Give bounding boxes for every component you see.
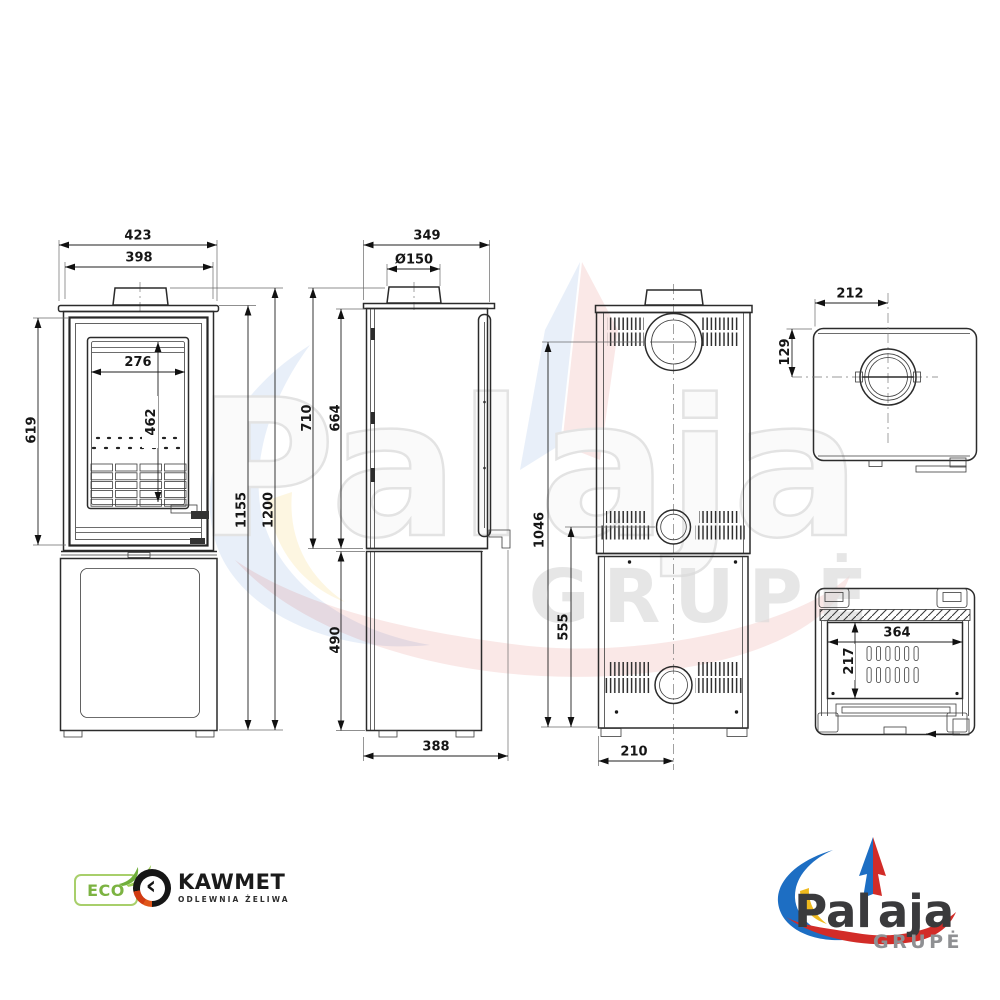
dim-label-349: 349 xyxy=(413,229,440,244)
door-handle-grip xyxy=(191,511,209,519)
palaja-subtitle: GRUPĖ xyxy=(873,929,963,953)
dim-label-423: 423 xyxy=(124,229,151,244)
front-louvers xyxy=(91,464,186,506)
top-view xyxy=(792,293,977,472)
kawmet-icon: ‹ xyxy=(133,869,171,907)
dim-label-388: 388 xyxy=(422,740,449,755)
kawmet-logo: ‹ KAWMET ODLEWNIA ŻELIWA xyxy=(133,869,290,907)
kawmet-subtitle: ODLEWNIA ŻELIWA xyxy=(178,895,290,904)
dim-label-210: 210 xyxy=(620,745,647,760)
palaja-word-left: Pal xyxy=(794,885,872,938)
eco-logo: ECO xyxy=(74,874,138,906)
dim-label-364: 364 xyxy=(883,626,910,641)
dim-label-1155: 1155 xyxy=(235,492,250,528)
dim-label-490: 490 xyxy=(329,626,344,653)
dim-label-217: 217 xyxy=(842,647,857,674)
technical-drawing-page: Pal aja GRUPĖ xyxy=(0,0,1000,1000)
dim-label-276: 276 xyxy=(124,355,151,370)
dim-label-1046: 1046 xyxy=(533,512,548,548)
palaja-logo: Pal aja GRUPĖ xyxy=(770,834,980,956)
dim-label-664: 664 xyxy=(329,404,344,431)
dim-label-462: 462 xyxy=(144,408,159,435)
kawmet-name: KAWMET xyxy=(178,872,290,893)
front-view xyxy=(59,282,219,737)
dim-label-129: 129 xyxy=(778,338,793,365)
kawmet-chevron-icon: ‹ xyxy=(146,873,157,899)
top-view-dimensions: 212 129 xyxy=(778,287,888,378)
bottom-view-dimensions: 364 217 xyxy=(828,623,963,699)
side-view xyxy=(364,282,511,737)
dim-label-555: 555 xyxy=(557,613,572,640)
dim-label-212: 212 xyxy=(836,287,863,302)
bottom-view xyxy=(816,589,975,736)
dim-label-flue-diameter: Ø150 xyxy=(395,253,433,268)
dim-label-398: 398 xyxy=(125,251,152,266)
dim-label-710: 710 xyxy=(300,404,315,431)
grate-slots xyxy=(867,647,918,683)
dim-label-619: 619 xyxy=(25,416,40,443)
dim-label-1200: 1200 xyxy=(262,492,277,528)
